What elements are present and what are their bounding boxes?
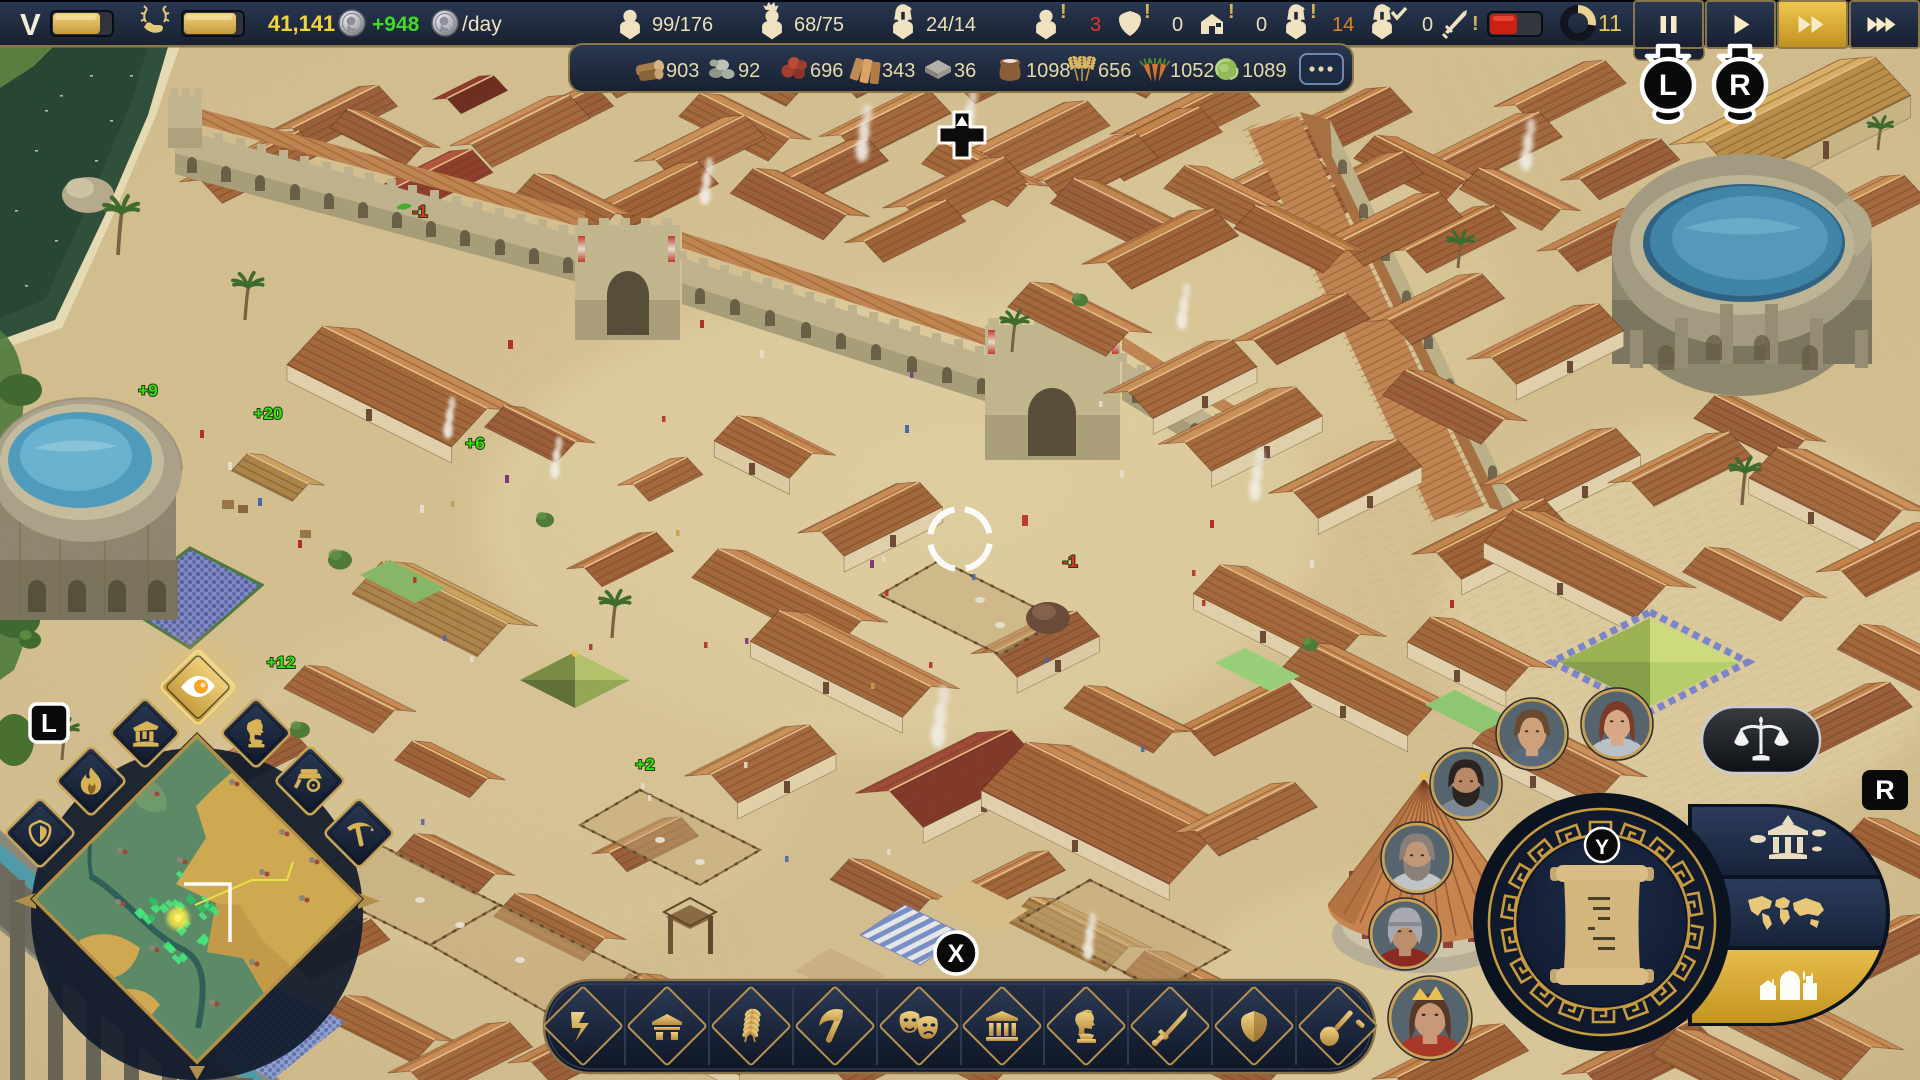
svg-text:903: 903 <box>666 60 699 82</box>
svg-text:1052: 1052 <box>1170 60 1215 82</box>
svg-text:0: 0 <box>1256 14 1267 36</box>
svg-text:L: L <box>1659 69 1677 102</box>
svg-text:1098: 1098 <box>1026 60 1071 82</box>
svg-text:1089: 1089 <box>1242 60 1287 82</box>
svg-text:99/176: 99/176 <box>652 14 713 36</box>
svg-text:!: ! <box>1310 1 1317 23</box>
svg-text:656: 656 <box>1098 60 1131 82</box>
svg-text:L: L <box>41 708 57 738</box>
svg-text:14: 14 <box>1332 14 1354 36</box>
svg-text:Y: Y <box>1595 836 1609 859</box>
svg-text:X: X <box>948 940 965 968</box>
svg-text:R: R <box>1729 69 1751 102</box>
svg-text:24/14: 24/14 <box>926 14 976 36</box>
svg-text:!: ! <box>1144 1 1151 23</box>
svg-text:!: ! <box>1060 1 1067 23</box>
svg-text:0: 0 <box>1422 14 1433 36</box>
svg-text:0: 0 <box>1172 14 1183 36</box>
svg-text:696: 696 <box>810 60 843 82</box>
svg-text:V: V <box>20 7 41 42</box>
svg-text:68/75: 68/75 <box>794 14 844 36</box>
svg-text:41,141: 41,141 <box>268 11 335 36</box>
svg-text:3: 3 <box>1090 14 1101 36</box>
svg-text:11: 11 <box>1598 10 1622 36</box>
svg-text:92: 92 <box>738 60 760 82</box>
svg-text:343: 343 <box>882 60 915 82</box>
svg-text:!: ! <box>1472 13 1479 35</box>
svg-text:36: 36 <box>954 60 976 82</box>
svg-text:+948: +948 <box>372 13 420 36</box>
svg-text:!: ! <box>1228 1 1235 23</box>
svg-text:/day: /day <box>462 13 502 36</box>
svg-text:R: R <box>1875 775 1895 805</box>
